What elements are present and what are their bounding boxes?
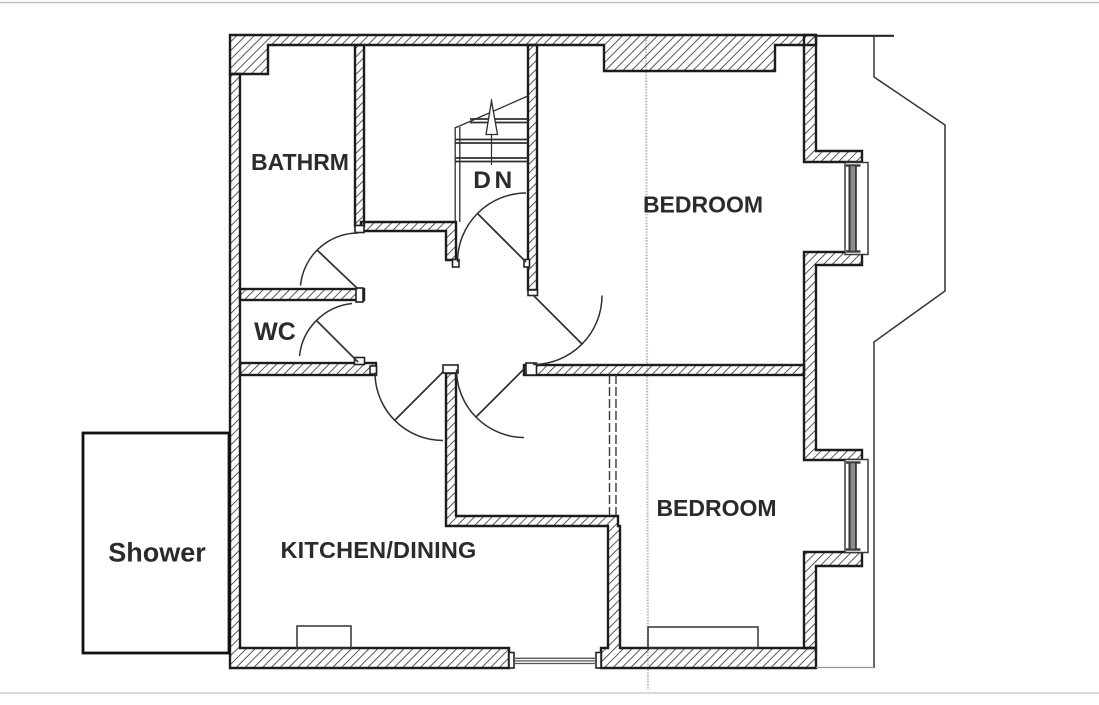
svg-text:DN: DN	[473, 167, 515, 194]
svg-text:BEDROOM: BEDROOM	[656, 495, 776, 521]
svg-text:BEDROOM: BEDROOM	[643, 192, 763, 218]
svg-text:BATHRM: BATHRM	[251, 149, 349, 175]
svg-text:WC: WC	[254, 318, 296, 346]
svg-text:Shower: Shower	[108, 538, 206, 568]
svg-text:KITCHEN/DINING: KITCHEN/DINING	[280, 537, 476, 563]
